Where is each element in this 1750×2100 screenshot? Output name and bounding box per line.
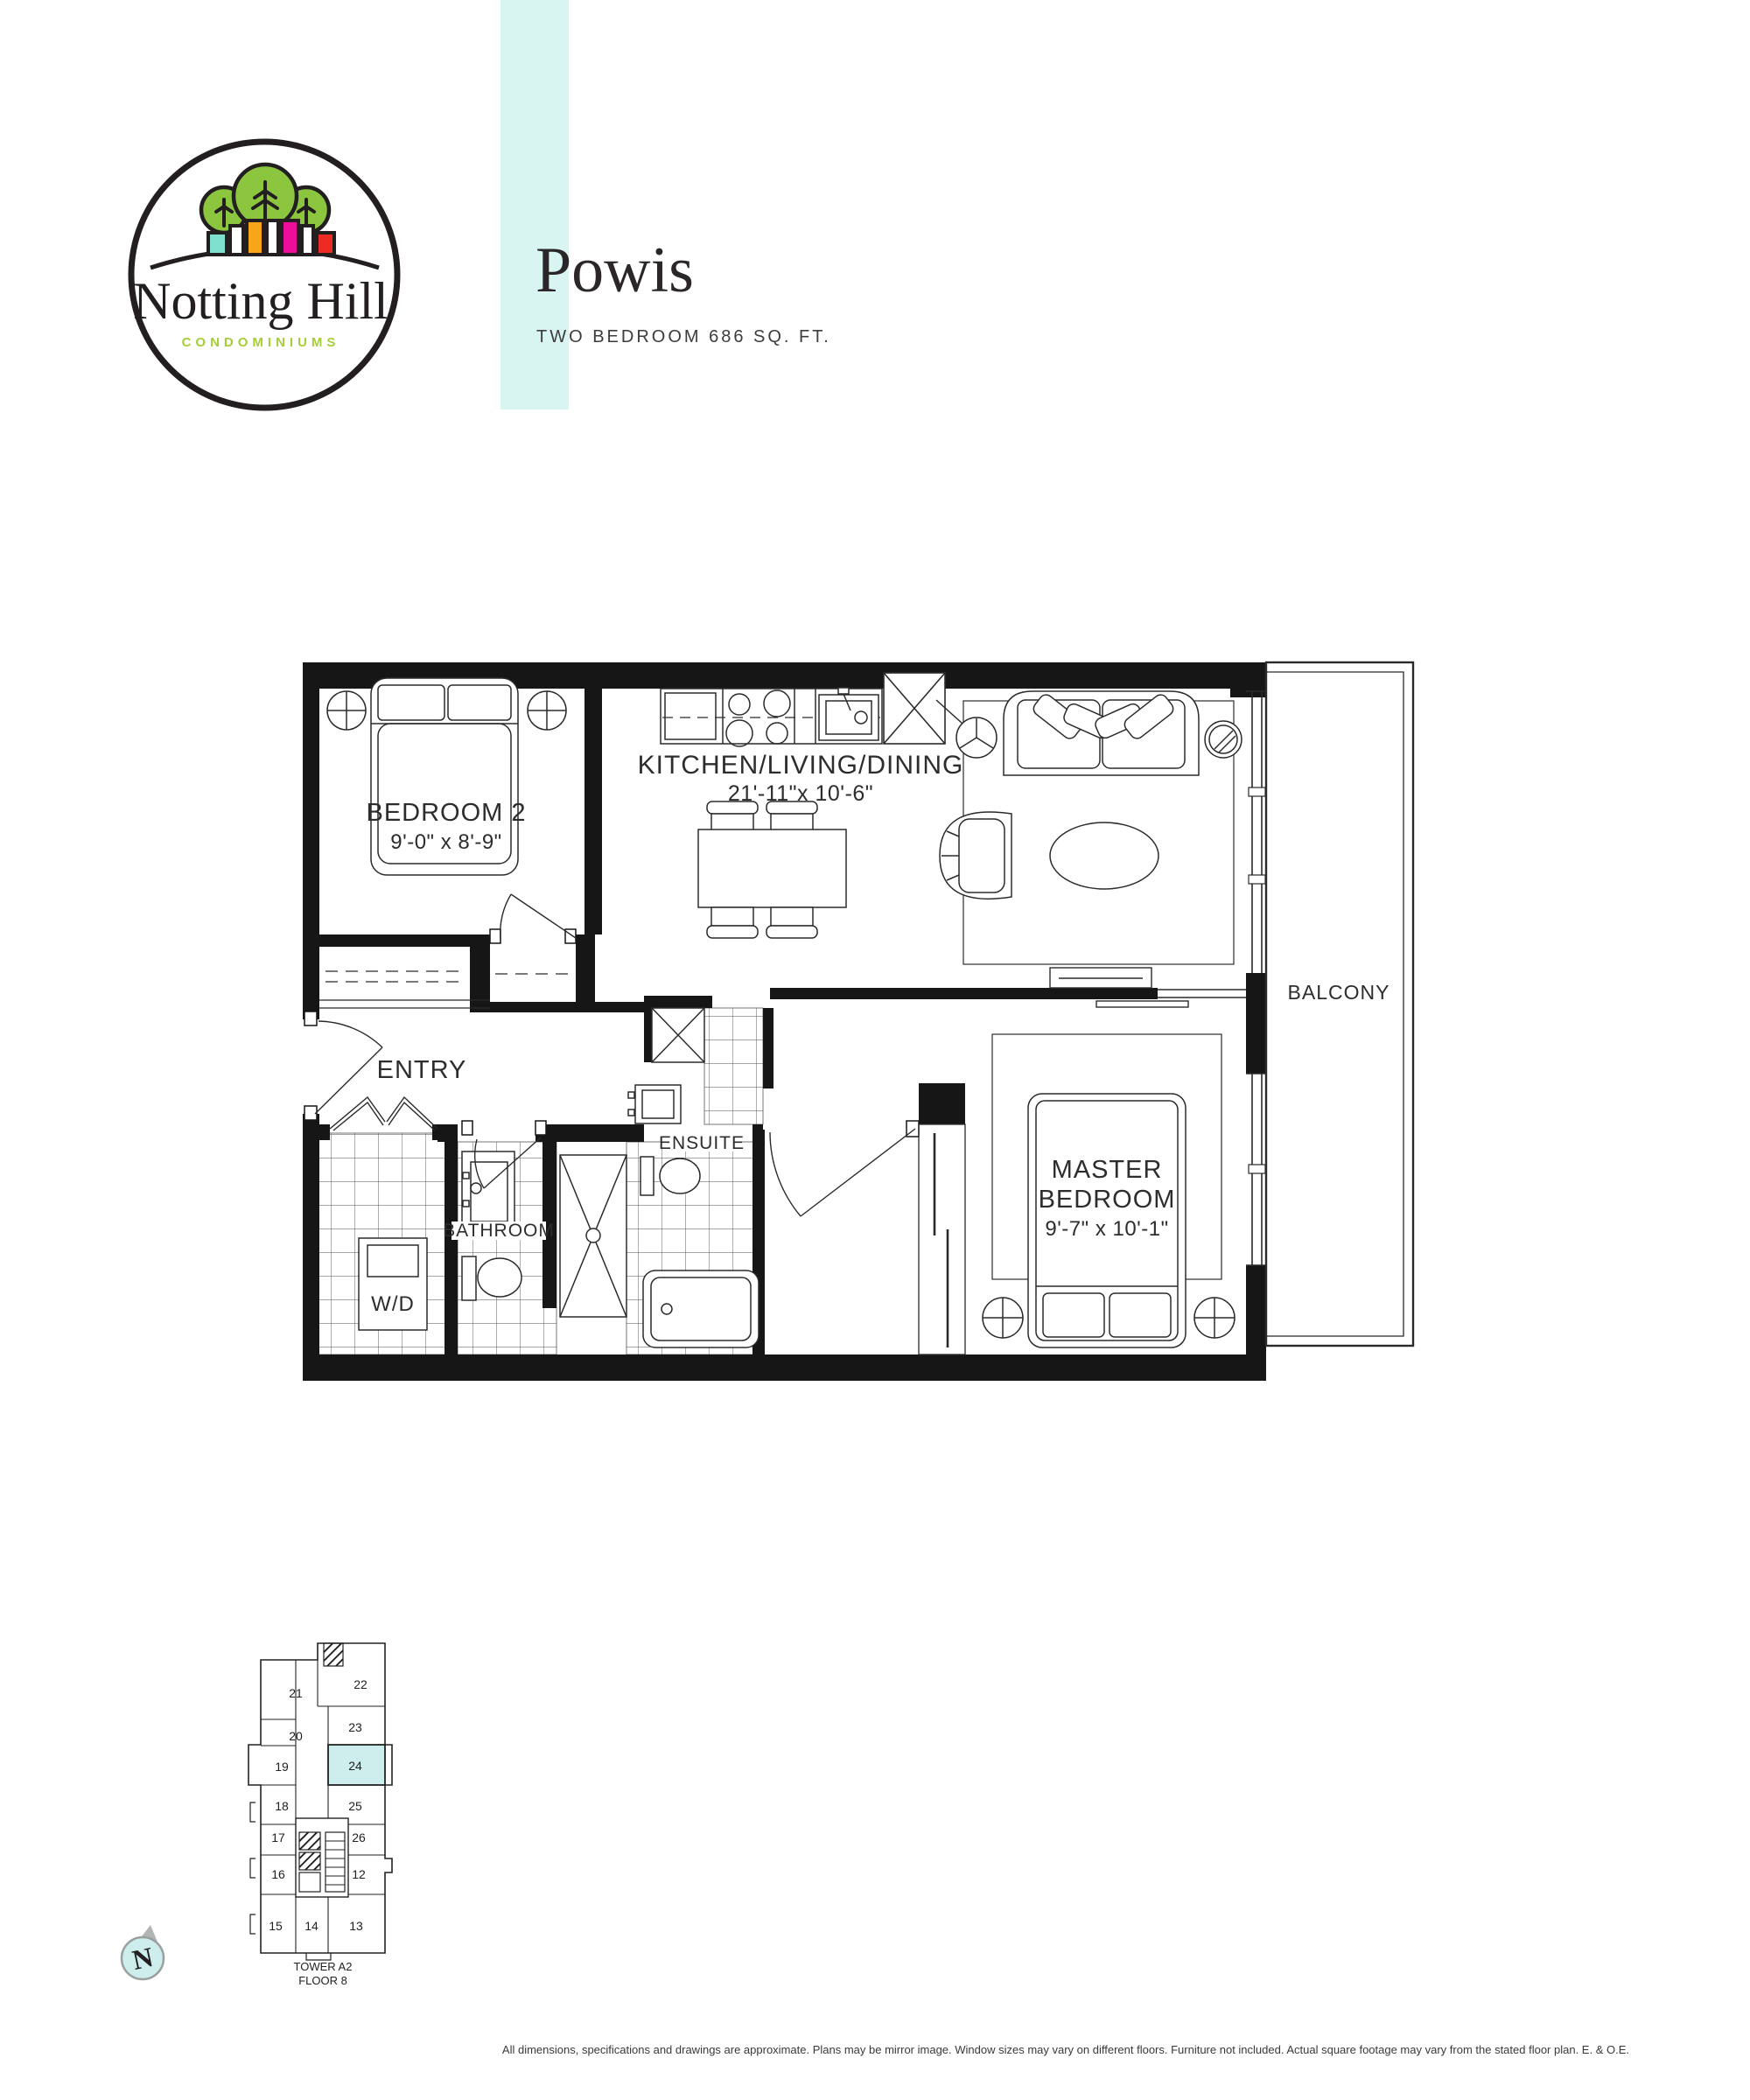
keyplan-unit-label: 26 bbox=[352, 1830, 366, 1844]
key-plan: 21 22 20 23 19 24 18 25 17 26 16 12 15 1… bbox=[248, 1643, 392, 1987]
master-closet bbox=[919, 1124, 965, 1354]
page-title: Powis bbox=[535, 234, 694, 306]
floor-plan: BALCONY BEDROOM 2 9'-0" x 8'-9" bbox=[303, 662, 1413, 1381]
shower-icon bbox=[560, 1155, 626, 1317]
disclaimer: All dimensions, specifications and drawi… bbox=[502, 2043, 1629, 2056]
keyplan-unit-label: 18 bbox=[275, 1799, 289, 1813]
fridge-icon bbox=[884, 673, 945, 744]
page-subtitle: TWO BEDROOM 686 SQ. FT. bbox=[536, 327, 831, 346]
living-room bbox=[936, 691, 1242, 1007]
dining-set bbox=[698, 801, 846, 938]
keyplan-unit-label: 12 bbox=[352, 1867, 366, 1881]
keyplan-unit-label: 19 bbox=[275, 1760, 289, 1774]
entry-label: ENTRY bbox=[377, 1056, 467, 1084]
keyplan-unit-label: 20 bbox=[289, 1729, 303, 1743]
bedroom2: BEDROOM 2 9'-0" x 8'-9" bbox=[327, 678, 576, 940]
ensuite-label: ENSUITE bbox=[659, 1133, 745, 1153]
wd-bifold-doors bbox=[330, 1097, 437, 1130]
coffee-table-icon bbox=[1050, 822, 1158, 889]
keyplan-unit-label: 17 bbox=[271, 1830, 285, 1844]
bathtub-icon bbox=[643, 1270, 759, 1347]
entry: ENTRY bbox=[315, 1021, 466, 1130]
side-table-right-icon bbox=[1205, 721, 1242, 758]
tv-console-icon bbox=[1050, 968, 1188, 1007]
keyplan-unit-label: 16 bbox=[271, 1867, 285, 1881]
keyplan-tower: TOWER A2 bbox=[294, 1960, 353, 1973]
keyplan-unit-label: 13 bbox=[349, 1919, 363, 1933]
bedroom2-door bbox=[500, 894, 576, 940]
keyplan-unit-label: 14 bbox=[304, 1919, 318, 1933]
keyplan-unit-label: 15 bbox=[269, 1919, 283, 1933]
keyplan-unit-label: 22 bbox=[353, 1677, 367, 1691]
divider-thin bbox=[1158, 990, 1246, 997]
brand-tagline: CONDOMINIUMS bbox=[182, 335, 340, 350]
laundry: W/D bbox=[359, 1238, 427, 1330]
ensuite-nook bbox=[628, 1008, 704, 1123]
keyplan-unit-label: 23 bbox=[348, 1720, 362, 1734]
bedroom2-label: BEDROOM 2 bbox=[366, 799, 526, 827]
balcony-label: BALCONY bbox=[1288, 981, 1390, 1004]
master-label-line1: MASTER bbox=[1052, 1156, 1163, 1184]
keyplan-unit-label: 25 bbox=[348, 1799, 362, 1813]
bathroom-toilet-icon bbox=[462, 1256, 521, 1300]
sink-icon bbox=[819, 688, 878, 740]
kitchen: KITCHEN/LIVING/DINING 21'-11"x 10'-6" bbox=[638, 673, 964, 806]
accent-stripe bbox=[500, 0, 569, 409]
sofa-icon bbox=[1004, 691, 1199, 775]
keyplan-unit-label: 21 bbox=[289, 1686, 303, 1700]
keyplan-floor: FLOOR 8 bbox=[298, 1974, 347, 1987]
armchair-icon bbox=[940, 812, 1011, 899]
bedroom2-dims: 9'-0" x 8'-9" bbox=[390, 830, 501, 854]
master-bedroom: MASTER BEDROOM 9'-7" x 10'-1" bbox=[919, 1034, 1235, 1354]
brand-logo: Notting Hill CONDOMINIUMS bbox=[131, 142, 397, 408]
master-label-line2: BEDROOM bbox=[1039, 1186, 1176, 1214]
wd-label: W/D bbox=[371, 1292, 415, 1316]
bathroom-label: BATHROOM bbox=[443, 1221, 555, 1241]
master-dims: 9'-7" x 10'-1" bbox=[1045, 1217, 1168, 1241]
entry-door bbox=[315, 1021, 382, 1114]
ensuite-toilet-icon bbox=[640, 1157, 700, 1195]
hinge-marks bbox=[304, 929, 919, 1137]
master-suite-door bbox=[770, 1129, 915, 1216]
compass: N bbox=[122, 1925, 164, 1979]
brand-name: Notting Hill bbox=[133, 272, 388, 330]
keyplan-unit-label: 24 bbox=[348, 1759, 362, 1773]
balcony: BALCONY bbox=[1266, 662, 1413, 1346]
floorplan-sheet: Notting Hill CONDOMINIUMS Powis TWO BEDR… bbox=[0, 0, 1750, 2100]
kitchen-label: KITCHEN/LIVING/DINING bbox=[638, 751, 964, 780]
